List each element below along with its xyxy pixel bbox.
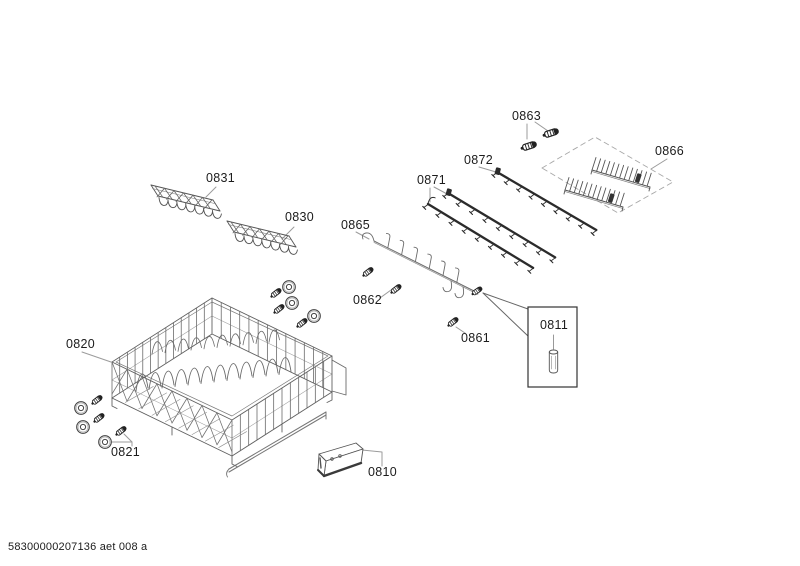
- lower-rack-0820: [112, 298, 346, 477]
- part-label-0865: 0865: [341, 218, 370, 232]
- axle-clips: [90, 128, 559, 437]
- part-label-0861: 0861: [461, 331, 490, 345]
- part-label-0863: 0863: [512, 109, 541, 123]
- diagram-canvas: [0, 0, 800, 566]
- part-label-0862: 0862: [353, 293, 382, 307]
- part-label-0871: 0871: [417, 173, 446, 187]
- part-label-0821: 0821: [111, 445, 140, 459]
- parts-diagram-page: 0820 0821 0831 0830 0865 0862 0861 0871 …: [0, 0, 800, 566]
- part-label-0830: 0830: [285, 210, 314, 224]
- folding-tine-rows-0830-0831: [151, 185, 297, 254]
- plate-rack-inserts-0866: [542, 137, 673, 213]
- part-label-0872: 0872: [464, 153, 493, 167]
- document-id: 58300000207136 aet 008 a: [8, 541, 147, 553]
- detail-box-0811: [483, 293, 577, 387]
- part-label-0810: 0810: [368, 465, 397, 479]
- part-label-0811: 0811: [540, 318, 568, 332]
- part-label-0820: 0820: [66, 337, 95, 351]
- part-label-0831: 0831: [206, 171, 235, 185]
- hook-wire-0865: [362, 233, 483, 298]
- tray-0810: [318, 443, 363, 476]
- part-label-0866: 0866: [655, 144, 684, 158]
